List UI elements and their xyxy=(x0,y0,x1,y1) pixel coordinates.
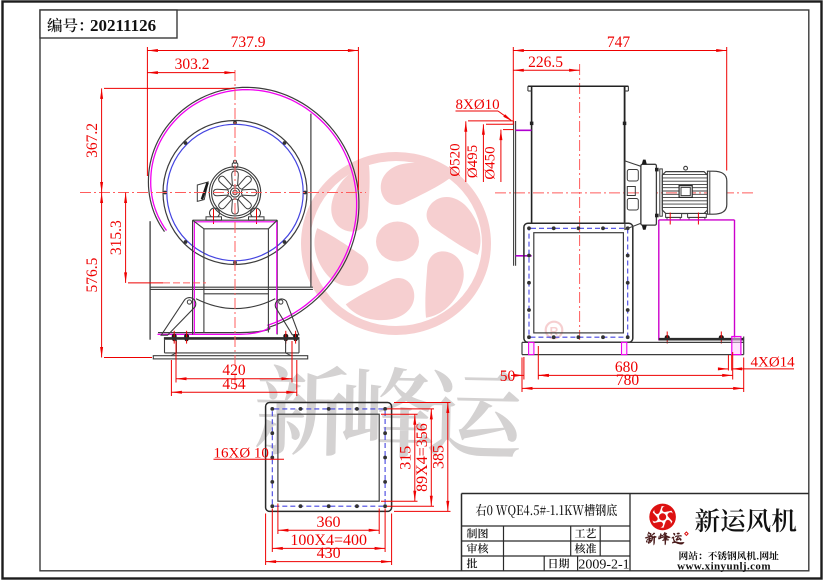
svg-text:315.3: 315.3 xyxy=(108,220,125,255)
svg-text:385: 385 xyxy=(430,445,447,469)
svg-text:8XØ10: 8XØ10 xyxy=(456,97,500,113)
svg-text:454: 454 xyxy=(222,376,246,393)
svg-text:Ø520: Ø520 xyxy=(447,143,463,176)
svg-text:www.xinyunlj.com: www.xinyunlj.com xyxy=(677,561,771,573)
svg-text:Ø450: Ø450 xyxy=(482,146,498,179)
svg-text:50: 50 xyxy=(500,368,516,385)
svg-text:430: 430 xyxy=(317,545,341,562)
svg-text:737.9: 737.9 xyxy=(231,34,266,51)
svg-text:576.5: 576.5 xyxy=(84,257,101,292)
svg-text:226.5: 226.5 xyxy=(528,54,563,71)
svg-text:780: 780 xyxy=(616,372,640,389)
svg-text:360: 360 xyxy=(317,514,341,531)
svg-text:20211126: 20211126 xyxy=(90,16,156,35)
svg-text:89X4=356: 89X4=356 xyxy=(414,423,431,492)
svg-text:4XØ14: 4XØ14 xyxy=(751,354,796,370)
svg-text:747: 747 xyxy=(607,34,631,51)
svg-text:315: 315 xyxy=(397,446,414,470)
svg-text:2009-2-1: 2009-2-1 xyxy=(578,558,629,573)
svg-text:303.2: 303.2 xyxy=(175,56,210,73)
svg-text:367.2: 367.2 xyxy=(84,123,101,158)
svg-text:Ø495: Ø495 xyxy=(465,145,481,178)
